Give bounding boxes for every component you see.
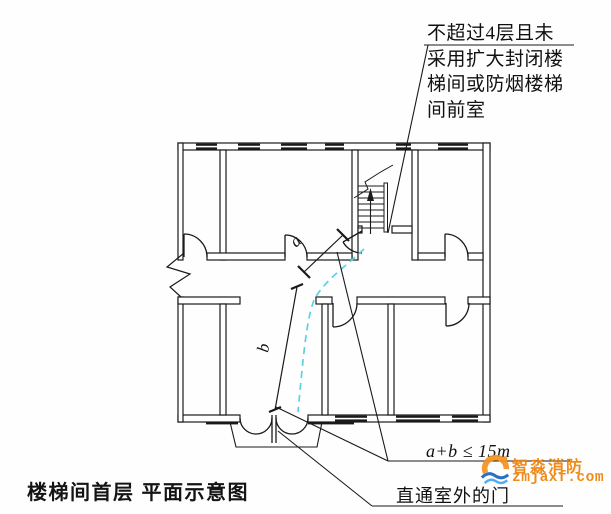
figure-canvas: a b 不超过4层且未 采用扩大封闭楼 梯间或防烟楼梯 间前室 a+b ≤ 15… xyxy=(0,0,611,514)
vestibule-left-wall xyxy=(220,304,226,415)
door-bottom-right-room xyxy=(446,303,469,326)
note-line: 不超过4层且未 xyxy=(427,21,587,47)
watermark-site-text: zmjaxf.com xyxy=(512,470,604,486)
interior-walls xyxy=(178,150,490,415)
door-bottom-middle-room xyxy=(333,303,357,327)
stair-up-arrow xyxy=(367,188,374,201)
exterior-double-door xyxy=(240,415,308,443)
stair-symbol xyxy=(354,165,393,234)
dimension-a-label: a xyxy=(286,231,305,251)
window-symbols xyxy=(196,144,478,422)
vestibule-right-wall xyxy=(322,304,328,415)
stairwell-annotation-note: 不超过4层且未 采用扩大封闭楼 梯间或防烟楼梯 间前室 xyxy=(427,21,587,123)
watermark: 智淼消防 zmjaxf.com xyxy=(479,449,609,495)
door-top-right-room xyxy=(445,234,468,257)
dimension-b-label: b xyxy=(253,342,273,354)
bottom-wall-left xyxy=(178,415,240,422)
stairwell-south-wall xyxy=(392,226,412,233)
rule-leader-to-a xyxy=(337,252,388,461)
escape-route-path xyxy=(298,249,364,412)
stair-handrail xyxy=(384,183,388,232)
partition-bottomright xyxy=(388,304,394,415)
left-wall-upper xyxy=(178,143,183,260)
partition-topleft xyxy=(220,150,226,260)
watermark-logo-icon xyxy=(479,451,511,489)
left-wall-lower xyxy=(178,297,183,422)
door-top-left-room xyxy=(184,234,207,257)
exit-note-leader xyxy=(278,431,372,506)
stair-note-leader xyxy=(388,45,428,233)
note-line: 梯间或防烟楼梯 xyxy=(427,72,587,98)
note-line: 采用扩大封闭楼 xyxy=(427,47,587,73)
wall-footings xyxy=(206,422,354,424)
dimension-b-line xyxy=(275,287,297,410)
figure-caption: 楼梯间首层 平面示意图 xyxy=(27,476,249,505)
stairwell-right-wall xyxy=(412,150,418,260)
right-wall xyxy=(483,143,490,422)
stairwell-left-wall xyxy=(352,150,358,260)
note-line: 间前室 xyxy=(427,98,587,124)
